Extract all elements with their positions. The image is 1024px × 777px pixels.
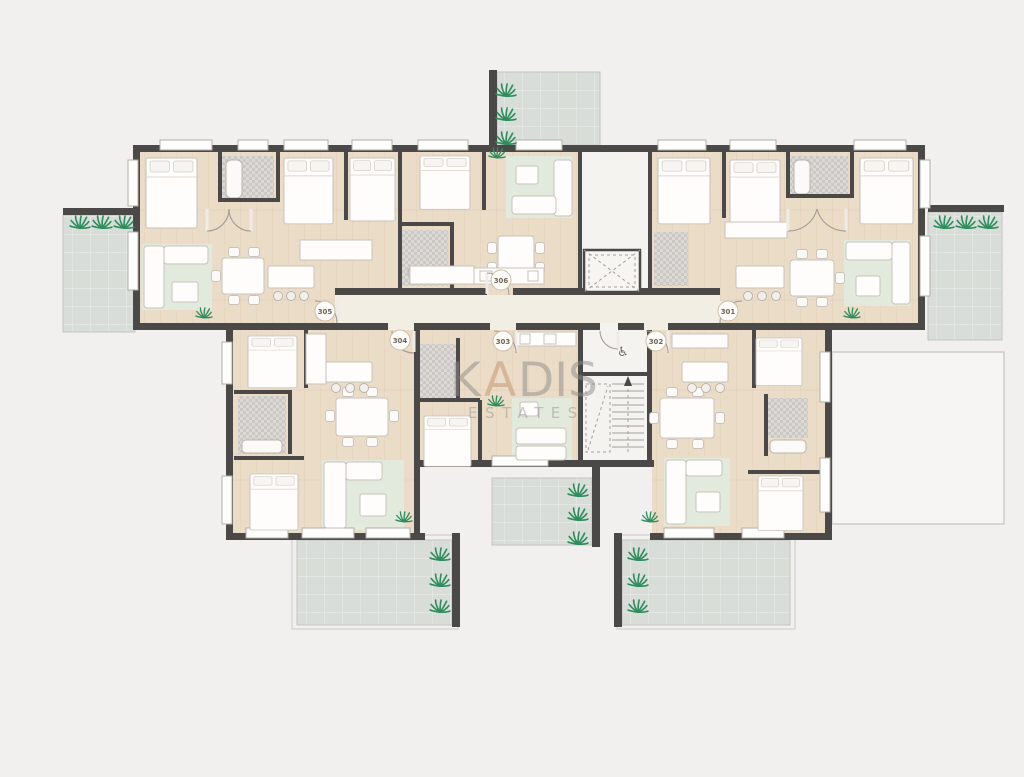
svg-text:306: 306 [494, 277, 509, 285]
balcony-bottom-left [292, 533, 460, 629]
bed [284, 158, 333, 224]
bed [250, 474, 298, 530]
unit-badge-303: 303 [493, 331, 513, 351]
kitchen-island-302 [682, 362, 728, 393]
svg-text:302: 302 [649, 338, 664, 346]
kitchen-counter-303 [514, 332, 576, 346]
wardrobe [672, 334, 728, 348]
watermark-line2: ESTATES [468, 404, 585, 422]
kitchen-island-304 [324, 362, 372, 393]
svg-text:303: 303 [496, 338, 511, 346]
watermark-accent-letter: A [484, 353, 516, 408]
wardrobe [300, 240, 372, 260]
bed [758, 476, 803, 531]
unit-badge-302: 302 [646, 331, 666, 351]
bed [756, 338, 802, 386]
svg-text:301: 301 [721, 308, 736, 316]
bed [146, 158, 197, 228]
svg-text:304: 304 [393, 337, 408, 345]
watermark-line1: KADIS [450, 353, 598, 408]
kitchen-island-301 [736, 266, 784, 301]
floor-plan-canvas: ♿ [0, 0, 1024, 777]
bed [424, 416, 471, 466]
bed [350, 158, 395, 221]
unit-badge-304: 304 [390, 330, 410, 350]
bed [860, 158, 913, 224]
unit-badge-306: 306 [491, 270, 511, 290]
floor-plan-drawing: ♿ [0, 0, 1024, 777]
kitchen-island-305 [268, 266, 314, 301]
bed [420, 156, 470, 209]
elevator [584, 250, 640, 292]
wardrobe [306, 334, 326, 384]
bed [730, 160, 780, 223]
unit-badge-305: 305 [315, 301, 335, 321]
wardrobe [725, 222, 787, 238]
watermark: KADIS ESTATES [450, 353, 598, 422]
unit-badge-301: 301 [718, 301, 738, 321]
terrace-right [832, 352, 1004, 524]
wardrobe [410, 266, 474, 284]
bed [658, 158, 710, 224]
bed [248, 336, 297, 388]
svg-text:305: 305 [318, 308, 333, 316]
corridor-floor [335, 295, 720, 323]
